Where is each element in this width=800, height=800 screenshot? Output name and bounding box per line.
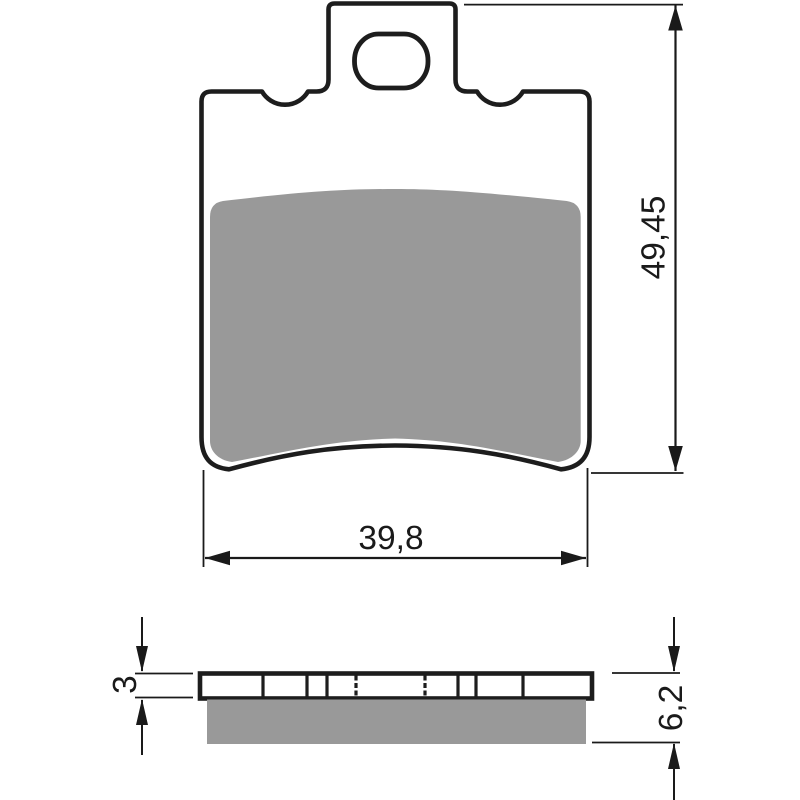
svg-text:49,45: 49,45	[636, 196, 673, 280]
svg-text:6,2: 6,2	[653, 685, 690, 732]
svg-text:3: 3	[107, 675, 144, 694]
svg-text:39,8: 39,8	[358, 520, 423, 557]
